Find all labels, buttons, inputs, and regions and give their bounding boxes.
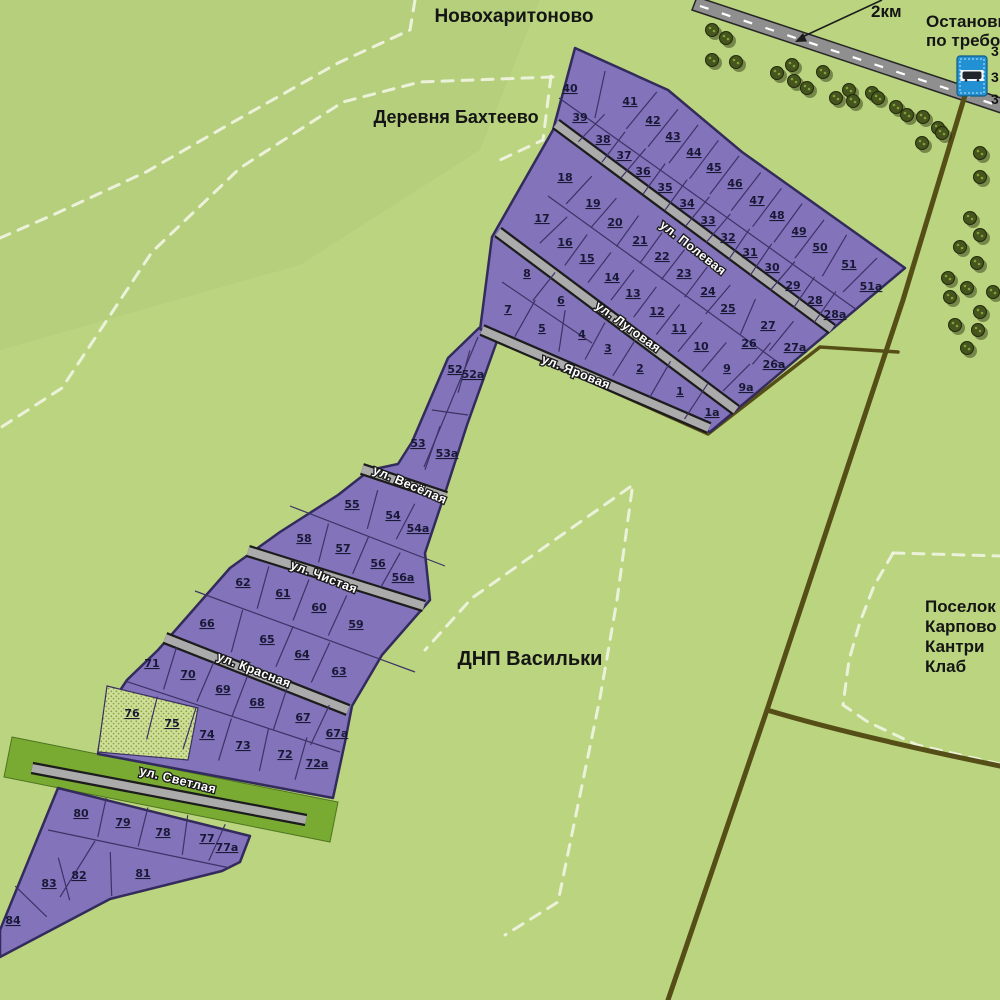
tree-icon	[944, 291, 957, 304]
plot-label-59[interactable]: 59	[348, 618, 363, 631]
plot-label-3[interactable]: 3	[604, 342, 612, 355]
plot-label-25[interactable]: 25	[720, 302, 735, 315]
tree-icon	[942, 272, 955, 285]
plot-label-73[interactable]: 73	[235, 739, 250, 752]
plot-label-84[interactable]: 84	[5, 914, 21, 927]
distance-2km-label: 2км	[871, 2, 902, 21]
plot-label-9а[interactable]: 9а	[738, 381, 753, 394]
tree-icon	[972, 324, 985, 337]
plot-label-2[interactable]: 2	[636, 362, 644, 375]
tree-icon	[793, 65, 796, 68]
bus-stop-line1-label: Остановка	[926, 12, 1000, 31]
tree-icon	[788, 75, 801, 88]
plot-label-39[interactable]: 39	[572, 111, 587, 124]
tree-icon	[974, 229, 987, 242]
plot-label-5[interactable]: 5	[538, 322, 546, 335]
boundary-dash	[843, 553, 1000, 764]
tree-icon	[778, 73, 781, 76]
tree-icon	[713, 30, 716, 33]
plot-label-6[interactable]: 6	[557, 294, 565, 307]
plot-label-53[interactable]: 53	[410, 437, 425, 450]
tree-icon	[971, 218, 974, 221]
tree-icon	[971, 257, 984, 270]
plot-label-8[interactable]: 8	[523, 267, 531, 280]
karpovo-line2-label: Карпово	[925, 617, 997, 636]
tree-icon	[978, 263, 981, 266]
dirt-road-branch	[767, 710, 1000, 766]
plot-label-16[interactable]: 16	[557, 236, 573, 249]
tree-icon	[974, 171, 987, 184]
plot-label-10[interactable]: 10	[693, 340, 709, 353]
plot-label-71[interactable]: 71	[144, 657, 159, 670]
plot-label-26[interactable]: 26	[741, 337, 757, 350]
bus-icon	[965, 79, 968, 82]
map-viewport: 40414243444546474849505151а3938373635343…	[0, 0, 1000, 1000]
plot-label-75[interactable]: 75	[164, 717, 179, 730]
karpovo-line1-label: Поселок	[925, 597, 996, 616]
plot-label-22[interactable]: 22	[654, 250, 669, 263]
derevnya-bakhteevo-label: Деревня Бахтеево	[373, 107, 538, 127]
tree-icon	[977, 150, 980, 153]
tree-icon	[897, 107, 900, 110]
plot-label-34[interactable]: 34	[679, 197, 695, 210]
tree-icon	[964, 212, 977, 225]
plot-label-76[interactable]: 76	[124, 707, 140, 720]
plot-label-27а[interactable]: 27а	[784, 341, 807, 354]
plot-label-27[interactable]: 27	[760, 319, 775, 332]
tree-icon	[733, 59, 736, 62]
dnp-vasilki-label: ДНП Васильки	[458, 648, 603, 670]
tree-icon	[919, 140, 922, 143]
plot-label-24[interactable]: 24	[700, 285, 716, 298]
plot-label-77а[interactable]: 77а	[216, 841, 239, 854]
tree-icon	[893, 104, 896, 107]
plot-label-13[interactable]: 13	[625, 287, 640, 300]
tree-icon	[801, 82, 814, 95]
plot-label-79[interactable]: 79	[115, 816, 130, 829]
route-cut-2-label: 3	[991, 69, 999, 85]
karpovo-line4-label: Клаб	[925, 657, 966, 676]
tree-icon	[879, 98, 882, 101]
tree-icon	[981, 153, 984, 156]
tree-icon	[774, 70, 777, 73]
tree-icon	[904, 112, 907, 115]
bus-icon	[963, 72, 982, 80]
plot-label-50[interactable]: 50	[812, 241, 828, 254]
plot-label-55[interactable]: 55	[344, 498, 359, 511]
plot-label-21[interactable]: 21	[632, 234, 647, 247]
plot-label-68[interactable]: 68	[249, 696, 264, 709]
plot-label-4[interactable]: 4	[578, 328, 586, 341]
plot-label-12[interactable]: 12	[649, 305, 664, 318]
route-cut-3-label: 3	[991, 91, 999, 107]
tree-icon	[964, 345, 967, 348]
tree-icon	[920, 114, 923, 117]
plot-label-35[interactable]: 35	[657, 181, 672, 194]
tree-icon	[961, 342, 974, 355]
plot-label-54а[interactable]: 54а	[407, 522, 430, 535]
tree-icon	[968, 348, 971, 351]
plot-label-9[interactable]: 9	[723, 362, 731, 375]
tree-icon	[875, 95, 878, 98]
plot-label-46[interactable]: 46	[727, 177, 743, 190]
plot-label-70[interactable]: 70	[180, 668, 196, 681]
tree-icon	[890, 101, 903, 114]
plot-label-31[interactable]: 31	[742, 246, 757, 259]
tree-icon	[820, 69, 823, 72]
plot-label-48[interactable]: 48	[769, 209, 784, 222]
tree-icon	[924, 117, 927, 120]
tree-icon	[979, 330, 982, 333]
plot-label-67[interactable]: 67	[295, 711, 310, 724]
plot-label-32[interactable]: 32	[720, 231, 735, 244]
boundary-dash	[893, 553, 1000, 556]
tree-icon	[974, 306, 987, 319]
plot-label-78[interactable]: 78	[155, 826, 170, 839]
plot-label-1[interactable]: 1	[676, 385, 684, 398]
plot-label-80[interactable]: 80	[73, 807, 89, 820]
plot-label-53а[interactable]: 53а	[436, 447, 459, 460]
plot-label-20[interactable]: 20	[607, 216, 623, 229]
plot-label-83[interactable]: 83	[41, 877, 56, 890]
tree-icon	[923, 143, 926, 146]
tree-icon	[964, 285, 967, 288]
tree-icon	[837, 98, 840, 101]
tree-icon	[949, 319, 962, 332]
plot-label-41[interactable]: 41	[622, 95, 637, 108]
tree-icon	[936, 127, 949, 140]
tree-icon	[706, 54, 719, 67]
tree-icon	[786, 59, 799, 72]
plot-label-28[interactable]: 28	[807, 294, 822, 307]
tree-icon	[908, 115, 911, 118]
plot-label-30[interactable]: 30	[764, 261, 780, 274]
plot-label-7[interactable]: 7	[504, 303, 512, 316]
plot-label-28а[interactable]: 28а	[824, 308, 847, 321]
tree-icon	[951, 297, 954, 300]
tree-icon	[723, 35, 726, 38]
tree-icon	[709, 27, 712, 30]
tree-icon	[974, 260, 977, 263]
plot-label-45[interactable]: 45	[706, 161, 721, 174]
tree-icon	[737, 62, 740, 65]
tree-icon	[994, 292, 997, 295]
plot-label-15[interactable]: 15	[579, 252, 594, 265]
route-cut-1-label: 3	[991, 43, 999, 59]
plot-label-69[interactable]: 69	[215, 683, 230, 696]
tree-icon	[961, 247, 964, 250]
tree-icon	[981, 177, 984, 180]
tree-icon	[981, 312, 984, 315]
tree-icon	[943, 133, 946, 136]
tree-icon	[830, 92, 843, 105]
plot-label-49[interactable]: 49	[791, 225, 806, 238]
tree-icon	[947, 294, 950, 297]
tree-icon	[977, 174, 980, 177]
tree-icon	[901, 109, 914, 122]
karpovo-line3-label: Кантри	[925, 637, 984, 656]
plot-label-65[interactable]: 65	[259, 633, 274, 646]
plot-label-14[interactable]: 14	[604, 271, 620, 284]
tree-icon	[720, 32, 733, 45]
tree-icon	[709, 57, 712, 60]
tree-icon	[713, 60, 716, 63]
plot-label-36[interactable]: 36	[635, 165, 651, 178]
tree-icon	[833, 95, 836, 98]
boundary-dash	[425, 487, 630, 650]
plot-label-61[interactable]: 61	[275, 587, 290, 600]
plot-label-57[interactable]: 57	[335, 542, 350, 555]
map-svg[interactable]: 40414243444546474849505151а3938373635343…	[0, 0, 1000, 1000]
plot-label-33[interactable]: 33	[700, 214, 715, 227]
plot-label-29[interactable]: 29	[785, 279, 800, 292]
tree-icon	[916, 137, 929, 150]
bus-stop-line2-label: по требованию	[926, 31, 1000, 50]
plot-label-42[interactable]: 42	[645, 114, 660, 127]
plot-label-38[interactable]: 38	[595, 133, 610, 146]
plot-label-18[interactable]: 18	[557, 171, 572, 184]
tree-icon	[977, 232, 980, 235]
tree-icon	[771, 67, 784, 80]
plot-label-40[interactable]: 40	[562, 82, 578, 95]
tree-icon	[956, 325, 959, 328]
plot-label-72а[interactable]: 72а	[306, 757, 329, 770]
tree-icon	[824, 72, 827, 75]
plot-label-74[interactable]: 74	[199, 728, 215, 741]
region-tint	[0, 0, 540, 350]
tree-icon	[974, 147, 987, 160]
tree-icon	[817, 66, 830, 79]
tree-icon	[917, 111, 930, 124]
tree-icon	[808, 88, 811, 91]
plot-label-56а[interactable]: 56а	[392, 571, 415, 584]
tree-icon	[854, 101, 857, 104]
plot-label-54[interactable]: 54	[385, 509, 401, 522]
plot-label-52а[interactable]: 52а	[462, 368, 485, 381]
plot-label-72[interactable]: 72	[277, 748, 292, 761]
tree-icon	[967, 215, 970, 218]
plot-label-81[interactable]: 81	[135, 867, 150, 880]
plot-label-11[interactable]: 11	[671, 322, 686, 335]
plot-label-56[interactable]: 56	[370, 557, 386, 570]
tree-icon	[939, 130, 942, 133]
tree-icon	[847, 95, 860, 108]
boundary-dash	[505, 490, 632, 935]
tree-icon	[804, 85, 807, 88]
plot-label-51а[interactable]: 51а	[860, 280, 883, 293]
plot-label-63[interactable]: 63	[331, 665, 346, 678]
tree-icon	[872, 92, 885, 105]
plot-label-44[interactable]: 44	[686, 146, 702, 159]
plot-label-26а[interactable]: 26а	[763, 358, 786, 371]
tree-icon	[990, 289, 993, 292]
plot-label-64[interactable]: 64	[294, 648, 310, 661]
tree-icon	[945, 275, 948, 278]
tree-icon	[961, 282, 974, 295]
plot-label-23[interactable]: 23	[676, 267, 691, 280]
plot-label-60[interactable]: 60	[311, 601, 327, 614]
novokharitonovo-label: Новохаритоново	[434, 6, 593, 27]
plot-label-82[interactable]: 82	[71, 869, 86, 882]
plot-label-47[interactable]: 47	[749, 194, 764, 207]
tree-icon	[977, 309, 980, 312]
plot-label-77[interactable]: 77	[199, 832, 214, 845]
bus-icon	[977, 79, 980, 82]
distance-arrow	[800, 0, 882, 38]
tree-icon	[791, 78, 794, 81]
tree-icon	[952, 322, 955, 325]
tree-icon	[987, 286, 1000, 299]
plot-label-62[interactable]: 62	[235, 576, 250, 589]
plot-label-1а[interactable]: 1а	[704, 406, 719, 419]
tree-icon	[846, 87, 849, 90]
plot-label-19[interactable]: 19	[585, 197, 600, 210]
plot-label-17[interactable]: 17	[534, 212, 549, 225]
plot-label-67а[interactable]: 67а	[326, 727, 349, 740]
tree-icon	[981, 235, 984, 238]
tree-icon	[935, 125, 938, 128]
tree-icon	[954, 241, 967, 254]
tree-icon	[975, 327, 978, 330]
tree-icon	[850, 98, 853, 101]
tree-icon	[727, 38, 730, 41]
plot-label-66[interactable]: 66	[199, 617, 215, 630]
tree-icon	[730, 56, 743, 69]
tree-icon	[869, 90, 872, 93]
plot-label-51[interactable]: 51	[841, 258, 856, 271]
plot-label-37[interactable]: 37	[616, 149, 631, 162]
tree-icon	[850, 90, 853, 93]
tree-icon	[968, 288, 971, 291]
tree-icon	[957, 244, 960, 247]
plot-label-43[interactable]: 43	[665, 130, 680, 143]
tree-icon	[949, 278, 952, 281]
tree-icon	[795, 81, 798, 84]
plot-label-52[interactable]: 52	[447, 363, 462, 376]
tree-icon	[789, 62, 792, 65]
plot-label-58[interactable]: 58	[296, 532, 311, 545]
tree-icon	[706, 24, 719, 37]
